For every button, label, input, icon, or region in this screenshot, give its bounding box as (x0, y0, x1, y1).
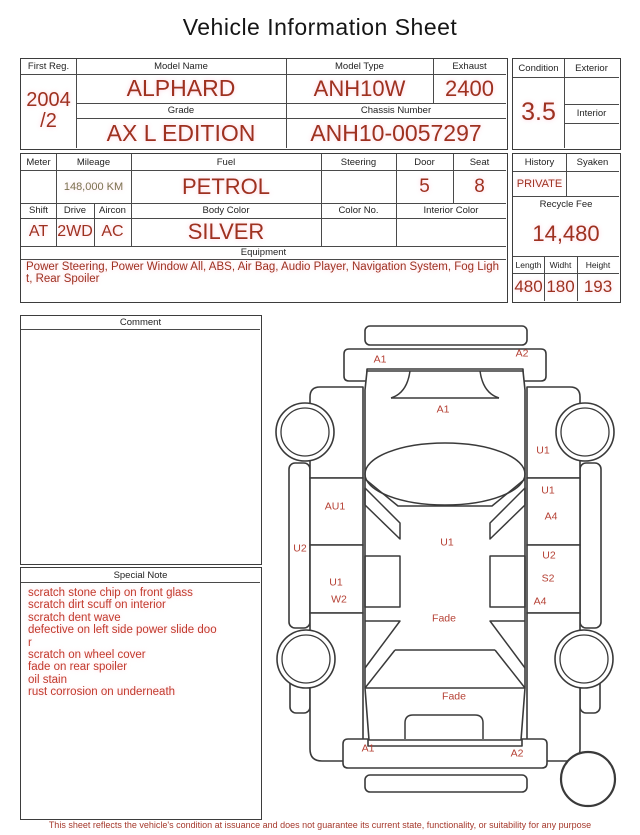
aircon-label: Aircon (94, 203, 131, 218)
diagram-damage-label: AU1 (325, 501, 346, 513)
diagram-damage-label: A1 (374, 354, 387, 366)
length-label: Length (513, 256, 544, 273)
rear-left-wheel-icon (277, 630, 335, 688)
drive-label: Drive (56, 203, 94, 218)
comment-box: Comment (20, 315, 262, 565)
exterior-label: Exterior (564, 59, 619, 77)
syaken-value (566, 171, 619, 196)
mileage-value: 148,000 KM (56, 170, 131, 203)
recycle-fee-value: 14,480 (513, 212, 619, 256)
meter-value (21, 170, 56, 203)
height-value: 193 (577, 273, 619, 301)
diagram-damage-label: U2 (293, 543, 307, 555)
first-reg-label: First Reg. (21, 59, 76, 74)
model-type-value: ANH10W (286, 74, 433, 103)
fuel-value: PETROL (131, 170, 321, 203)
door-value: 5 (396, 170, 453, 203)
seat-label: Seat (453, 154, 506, 170)
mileage-label: Mileage (56, 154, 131, 170)
meter-label: Meter (21, 154, 56, 170)
diagram-damage-label: U2 (542, 550, 556, 562)
history-label: History (513, 154, 566, 171)
history-panel: History Syaken PRIVATE Recycle Fee 14,48… (512, 153, 621, 303)
note-line: scratch on wheel cover (28, 649, 256, 661)
color-no-value (321, 218, 396, 246)
model-name-label: Model Name (76, 59, 286, 74)
door-label: Door (396, 154, 453, 170)
diagram-damage-label: U1 (541, 485, 555, 497)
body-color-value: SILVER (131, 218, 321, 246)
diagram-damage-label: W2 (331, 594, 347, 606)
front-right-wheel-icon (556, 403, 614, 461)
special-note-box: Special Note scratch stone chip on front… (20, 567, 262, 820)
steering-label: Steering (321, 154, 396, 170)
note-line: r (28, 637, 256, 649)
diagram-damage-label: U1 (329, 577, 343, 589)
diagram-damage-label: A2 (511, 748, 524, 760)
note-line: defective on left side power slide doo (28, 624, 256, 636)
drive-value: 2WD (56, 218, 94, 246)
disclaimer-text: This sheet reflects the vehicle's condit… (0, 820, 640, 830)
note-line: scratch dirt scuff on interior (28, 599, 256, 611)
width-value: 180 (544, 273, 577, 301)
diagram-damage-label: Fade (442, 691, 466, 703)
length-value: 480 (513, 273, 544, 301)
body-color-label: Body Color (131, 203, 321, 218)
identity-table: First Reg. 2004 /2 Model Name ALPHARD Mo… (20, 58, 508, 150)
special-note-label: Special Note (21, 568, 260, 582)
comment-label: Comment (21, 316, 260, 329)
fuel-label: Fuel (131, 154, 321, 170)
diagram-damage-label: Fade (432, 613, 456, 625)
vehicle-information-sheet: Vehicle Information Sheet First Reg. 200… (0, 0, 640, 835)
recycle-fee-label: Recycle Fee (513, 196, 619, 212)
interior-label: Interior (564, 104, 619, 123)
chassis-number-label: Chassis Number (286, 103, 506, 118)
page-title: Vehicle Information Sheet (0, 14, 640, 41)
aircon-value: AC (94, 218, 131, 246)
grade-value: AX L EDITION (76, 118, 286, 148)
exhaust-value: 2400 (433, 74, 506, 103)
equipment-label: Equipment (21, 246, 506, 259)
note-line: fade on rear spoiler (28, 661, 256, 673)
front-left-wheel-icon (276, 403, 334, 461)
diagram-damage-label: A2 (516, 348, 529, 360)
condition-label: Condition (513, 59, 564, 77)
diagram-damage-label: U1 (536, 445, 550, 457)
exhaust-label: Exhaust (433, 59, 506, 74)
exterior-value (564, 77, 619, 104)
diagram-damage-label: A1 (437, 404, 450, 416)
condition-panel: Condition 3.5 Exterior Interior (512, 58, 621, 150)
spare-tire-icon (561, 752, 615, 806)
color-no-label: Color No. (321, 203, 396, 218)
diagram-damage-label: A4 (534, 596, 547, 608)
first-reg-month: /2 (40, 111, 57, 132)
diagram-damage-label: U1 (440, 537, 454, 549)
rear-bumper-strip (365, 775, 527, 792)
diagram-damage-label: A1 (362, 743, 375, 755)
history-value: PRIVATE (513, 171, 566, 196)
shift-label: Shift (21, 203, 56, 218)
note-line: scratch stone chip on front glass (28, 587, 256, 599)
condition-value: 3.5 (513, 77, 564, 148)
divider (21, 582, 260, 583)
diagram-damage-label: A4 (545, 511, 558, 523)
grade-label: Grade (76, 103, 286, 118)
interior-color-label: Interior Color (396, 203, 506, 218)
chassis-number-value: ANH10-0057297 (286, 118, 506, 148)
right-rocker-panel (580, 463, 601, 628)
special-note-lines: scratch stone chip on front glassscratch… (28, 587, 256, 699)
steering-value (321, 170, 396, 203)
first-reg-year: 2004 (26, 90, 71, 111)
note-line: rust corrosion on underneath (28, 686, 256, 698)
height-label: Height (577, 256, 619, 273)
syaken-label: Syaken (566, 154, 619, 171)
shift-value: AT (21, 218, 56, 246)
front-bumper-strip (365, 326, 527, 345)
interior-color-value (396, 218, 506, 246)
width-label: Widht (544, 256, 577, 273)
comment-value (21, 329, 260, 563)
first-reg-value: 2004 /2 (21, 74, 76, 148)
car-damage-diagram: A1A2A1U1AU1U1A4U2U1U2U1S2W2A4FadeFadeA1A… (270, 315, 640, 815)
note-line: scratch dent wave (28, 612, 256, 624)
model-type-label: Model Type (286, 59, 433, 74)
diagram-damage-label: S2 (542, 573, 555, 585)
rear-right-wheel-icon (555, 630, 613, 688)
model-name-value: ALPHARD (76, 74, 286, 103)
spec-table: Meter Mileage Fuel Steering Door Seat 14… (20, 153, 508, 303)
equipment-value: Power Steering, Power Window All, ABS, A… (21, 259, 506, 301)
seat-value: 8 (453, 170, 506, 203)
note-line: oil stain (28, 674, 256, 686)
interior-value (564, 123, 619, 148)
